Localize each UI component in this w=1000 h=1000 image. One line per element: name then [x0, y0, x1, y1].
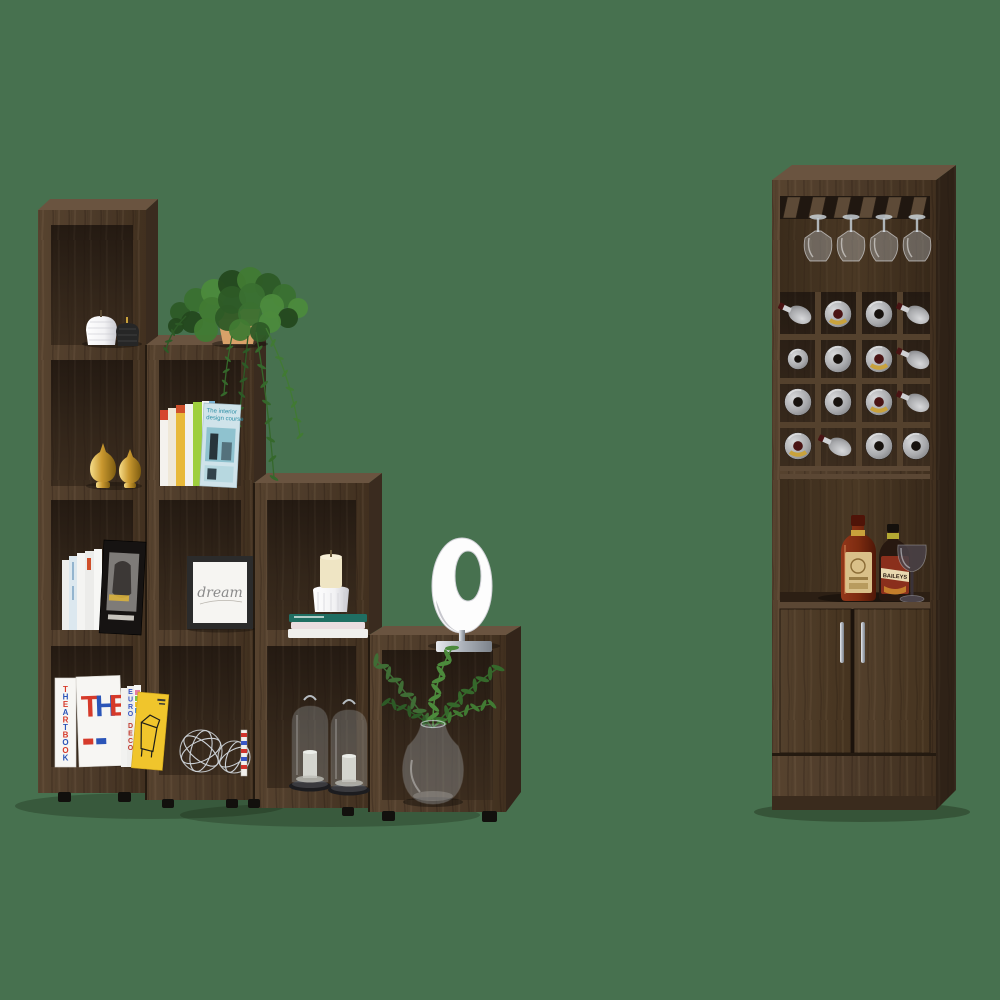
- spine-letter: R: [128, 704, 133, 711]
- liquor-compartment: BAILEYS: [780, 479, 930, 603]
- stemware-rack: [780, 196, 931, 292]
- spine-letter: O: [128, 711, 134, 718]
- framed-print: dream: [187, 556, 255, 633]
- spine-title-letters: THEARTBOOK: [62, 685, 68, 762]
- wine-bottle: [825, 346, 852, 373]
- wine-bottle: [788, 349, 809, 370]
- product-image: The interior design course: [0, 0, 1000, 1000]
- door-handle-right: [861, 622, 865, 663]
- spine-letter: C: [128, 738, 133, 745]
- print-text: dream: [197, 585, 243, 601]
- cabinet-base: [772, 796, 936, 810]
- bottle-cap: [851, 515, 865, 526]
- door-handle-left: [840, 622, 844, 663]
- scene-canvas: The interior design course: [0, 0, 1000, 1000]
- wine-bottle: [903, 433, 930, 460]
- spine-letter: E: [128, 730, 133, 737]
- wine-cubby-grid: [775, 292, 932, 479]
- pillar-candle: [320, 556, 342, 588]
- cabinet-top: [772, 165, 956, 180]
- bar-cabinet: BAILEYS: [772, 165, 956, 810]
- wine-bottle: [866, 433, 893, 460]
- spine-letter: D: [128, 723, 133, 730]
- bottle-cap: [887, 524, 899, 532]
- spine-letter: K: [63, 753, 69, 762]
- black-photo-book: [99, 540, 146, 635]
- wine-bottle: [825, 301, 852, 328]
- wine-bottle: [785, 433, 812, 460]
- striped-stick: [241, 730, 247, 776]
- spine-letter: U: [128, 696, 133, 703]
- wine-bottle: [825, 389, 852, 416]
- design-books: The interior design course: [160, 401, 245, 488]
- candle-wick: [100, 310, 102, 317]
- wine-bottle: [866, 301, 893, 328]
- wine-bottle: [785, 389, 812, 416]
- yellow-design-book: [131, 692, 169, 770]
- white-jar-candle: [86, 316, 117, 345]
- spine-letter: E: [128, 689, 133, 696]
- wine-bottle: [866, 389, 893, 416]
- black-jar-candle: [116, 323, 139, 346]
- candle-wick: [126, 317, 128, 323]
- wine-bottle: [866, 346, 893, 373]
